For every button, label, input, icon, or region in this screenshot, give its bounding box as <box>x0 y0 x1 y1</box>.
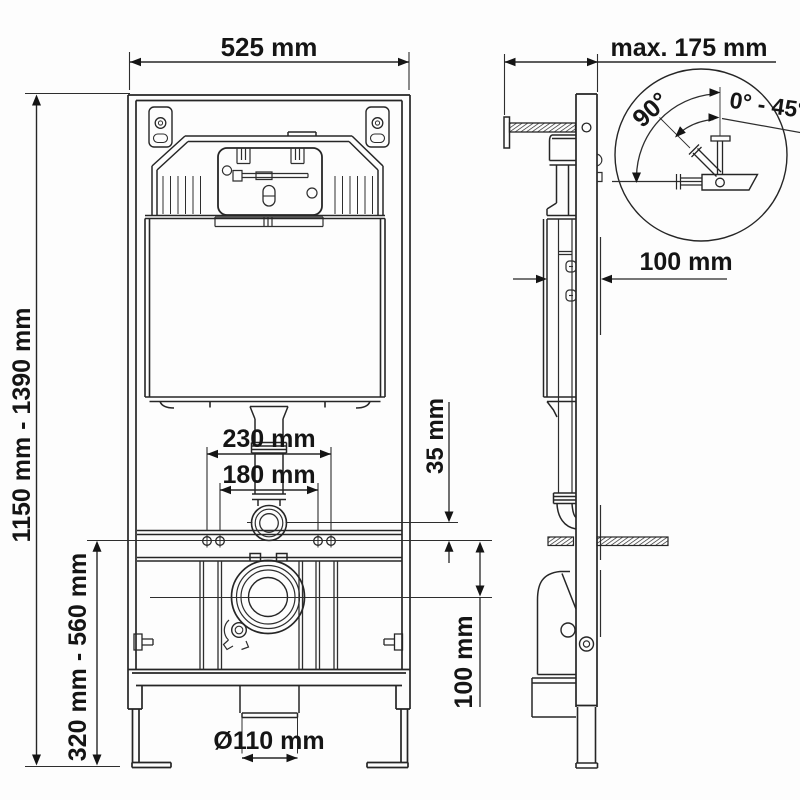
stud-spacing-outer-label: 230 mm <box>222 425 315 453</box>
detail-inclined-bolt-icon <box>689 145 721 177</box>
installation-drawing-page: 90° 0° - 45° 525 mm 1150 mm - 1390 mm 32… <box>0 0 800 800</box>
side-leg <box>576 707 598 768</box>
dim-stud-spacing-inner: 180 mm <box>220 461 318 530</box>
rail-screw-icon <box>580 637 594 651</box>
side-view <box>504 94 668 768</box>
rail-screw-center <box>583 641 589 647</box>
detail-vertical-bolt-icon <box>711 136 730 175</box>
dim-bowl-mount-height: 320 mm - 560 mm <box>64 541 102 766</box>
detail-bracket-plate <box>702 175 758 191</box>
side-flush-pipe <box>554 493 577 529</box>
window-screw-right-icon <box>307 188 317 198</box>
detail-plate-hole <box>716 178 725 187</box>
bracket-left-slot <box>154 134 168 143</box>
dim-supply-offset: 35 mm <box>422 398 454 563</box>
flush-pipe <box>250 407 288 507</box>
bowl-stud-rear-segment <box>597 537 668 546</box>
frame-depth-label: 100 mm <box>639 248 732 276</box>
side-cistern-profile <box>544 135 577 417</box>
wall-anchor-rod <box>510 123 576 132</box>
wall-offset-label: max. 175 mm <box>610 34 767 62</box>
window-hook-slots <box>237 148 304 164</box>
bowl-stud-front-segment <box>548 537 574 546</box>
side-rail <box>576 94 597 707</box>
detail-view-bracket-angles: 90° 0° - 45° <box>612 69 800 241</box>
swing-angle-label: 90° <box>627 87 674 133</box>
front-width-label: 525 mm <box>221 32 318 62</box>
bracket-right-slot <box>371 134 385 143</box>
stud-spacing-inner-label: 180 mm <box>222 461 315 489</box>
elbow-ring-inner <box>260 514 279 533</box>
bracket-right-screw-icon <box>372 118 383 129</box>
side-drain-block <box>532 678 576 717</box>
bracket-left-screw-icon <box>155 118 166 129</box>
dim-front-width: 525 mm <box>130 32 410 90</box>
dim-outlet-drop: 100 mm <box>450 542 485 709</box>
rail-anchor-hole <box>582 123 591 132</box>
bracket-right <box>366 107 389 147</box>
bowl-mount-height-label: 320 mm - 560 mm <box>64 553 92 761</box>
dim-arrowheads <box>445 512 454 552</box>
outlet-drop-label: 100 mm <box>450 615 478 708</box>
tilt-range-label: 0° - 45° <box>728 87 800 123</box>
wall-anchor-plate <box>504 117 510 148</box>
arc-45-arrowheads <box>675 113 720 137</box>
inlet-valve-ring <box>232 623 247 638</box>
tank-outline <box>145 216 385 409</box>
inlet-valve-center <box>235 626 243 634</box>
supply-offset-label: 35 mm <box>422 398 449 474</box>
wc-frame-technical-drawing: 90° 0° - 45° 525 mm 1150 mm - 1390 mm 32… <box>0 0 800 800</box>
dim-drain-diameter: Ø110 mm <box>213 727 324 762</box>
mounting-rails <box>137 531 402 562</box>
drain-diameter-label: Ø110 mm <box>213 727 324 755</box>
bracket-left <box>149 107 172 147</box>
bracket-left-screw-center <box>158 121 162 125</box>
bracket-right-screw-center <box>375 121 379 125</box>
dim-frame-depth: 100 mm <box>513 248 733 283</box>
side-inner-pipe <box>559 219 573 493</box>
adjustment-tool-icon <box>233 171 308 182</box>
pushrod-ports <box>566 261 576 301</box>
side-clips <box>134 634 403 650</box>
drain-chute <box>240 686 299 718</box>
bend-screw-icon <box>561 623 575 637</box>
cistern-ribs <box>163 176 373 214</box>
window-screw-left-icon <box>222 166 231 175</box>
dim-extension-lines <box>505 54 598 115</box>
overall-height-label: 1150 mm - 1390 mm <box>8 308 36 543</box>
